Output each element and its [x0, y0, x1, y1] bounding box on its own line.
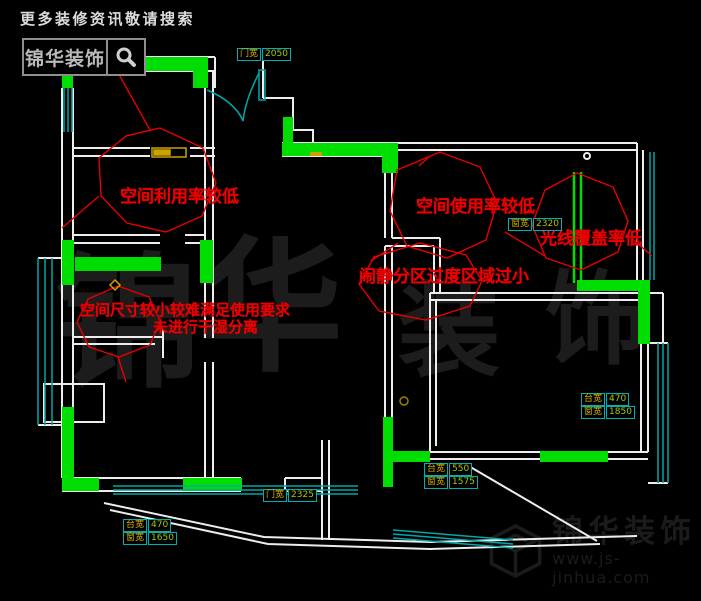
dim-label-sill-right: 台宽470: [581, 393, 629, 406]
brand-search-logo: 锦华装饰: [22, 38, 146, 76]
dim-key: 窗宽: [581, 406, 605, 419]
dim-label-window-mid: 窗宽1575: [424, 476, 478, 489]
cad-floorplan-canvas[interactable]: 锦 华 装 饰 锦华装饰 www.js-jinhua.com: [0, 0, 701, 601]
dim-key: 台宽: [123, 519, 147, 532]
dim-key: 窗宽: [508, 218, 532, 231]
annotation-space-usage-low: 空间使用率较低: [416, 192, 535, 217]
dim-key: 门宽: [263, 489, 287, 502]
dim-value: 2050: [262, 48, 291, 61]
dim-key: 门宽: [237, 48, 261, 61]
annotation-zoning-transition-small: 闹静分区过度区域过小: [359, 262, 529, 287]
dim-label-window-left: 窗宽1650: [123, 532, 177, 545]
dim-value: 470: [148, 519, 171, 532]
dim-value: 470: [606, 393, 629, 406]
dim-label-window-right: 窗宽1850: [581, 406, 635, 419]
dim-value: 1575: [449, 476, 478, 489]
dim-label-sill-left: 台宽470: [123, 519, 171, 532]
dim-value: 2325: [288, 489, 317, 502]
dim-label-door-top: 门宽2050: [237, 48, 291, 61]
dim-label-door-bottom: 门宽2325: [263, 489, 317, 502]
annotation-no-dry-wet-separation: 未进行干湿分离: [153, 316, 258, 337]
dim-key: 台宽: [581, 393, 605, 406]
dim-label-sill-mid: 台宽550: [424, 463, 472, 476]
brand-logo-text: 锦华装饰: [24, 40, 106, 74]
dim-value: 1650: [148, 532, 177, 545]
dim-key: 窗宽: [424, 476, 448, 489]
dim-value: 1850: [606, 406, 635, 419]
magnifier-icon: [115, 46, 137, 68]
dim-label-window-living: 窗宽2320: [508, 218, 562, 231]
dim-key: 台宽: [424, 463, 448, 476]
annotation-space-utilization-low: 空间利用率较低: [120, 182, 239, 207]
search-icon-cell: [106, 40, 144, 74]
dim-key: 窗宽: [123, 532, 147, 545]
dim-value: 2320: [533, 218, 562, 231]
promo-text: 更多装修资讯敬请搜索: [20, 8, 195, 29]
dim-value: 550: [449, 463, 472, 476]
